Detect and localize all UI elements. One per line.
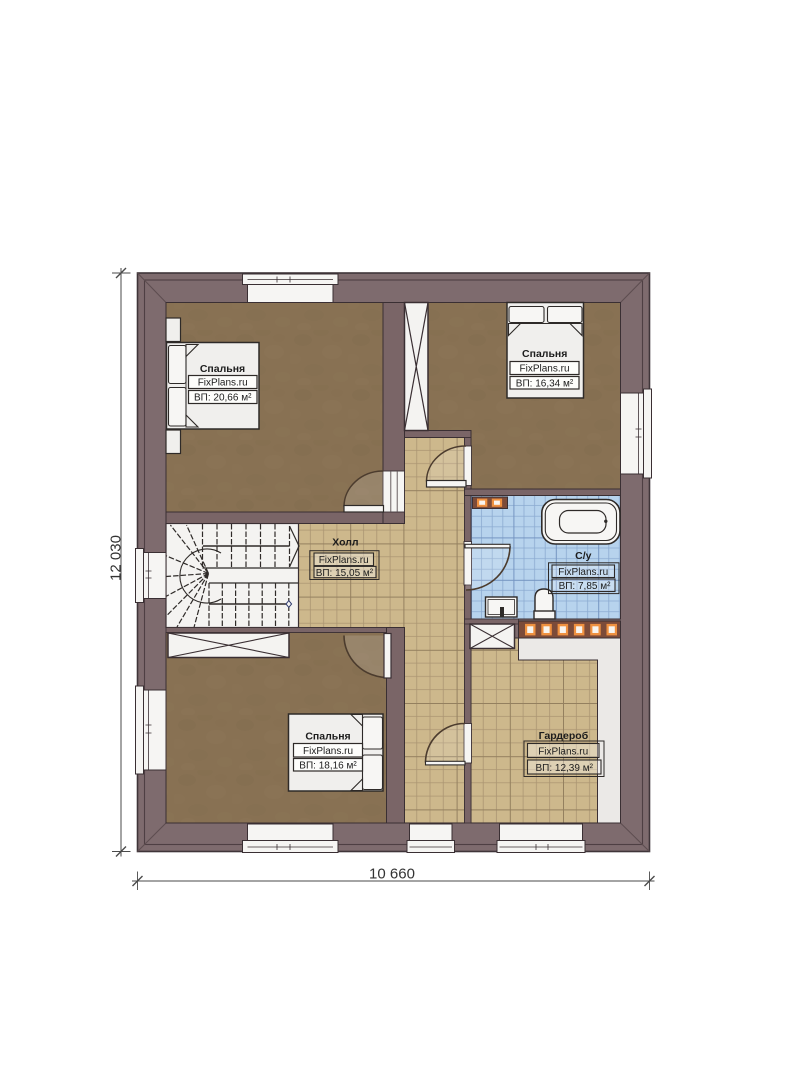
svg-text:ВП: 12,39 м²: ВП: 12,39 м² xyxy=(535,763,593,774)
svg-text:ВП: 20,66 м²: ВП: 20,66 м² xyxy=(194,393,252,404)
svg-text:10 660: 10 660 xyxy=(369,866,415,883)
svg-text:FixPlans.ru: FixPlans.ru xyxy=(319,555,369,566)
svg-text:FixPlans.ru: FixPlans.ru xyxy=(558,567,608,578)
svg-text:Холл: Холл xyxy=(332,537,358,549)
svg-text:FixPlans.ru: FixPlans.ru xyxy=(198,378,248,389)
svg-text:FixPlans.ru: FixPlans.ru xyxy=(303,746,353,757)
svg-text:ВП: 7,85 м²: ВП: 7,85 м² xyxy=(559,581,612,592)
svg-text:С/у: С/у xyxy=(575,550,592,562)
svg-text:ВП: 15,05 м²: ВП: 15,05 м² xyxy=(316,568,374,579)
svg-text:Спальня: Спальня xyxy=(522,348,567,360)
svg-text:FixPlans.ru: FixPlans.ru xyxy=(519,364,569,375)
svg-text:FixPlans.ru: FixPlans.ru xyxy=(538,746,588,757)
svg-text:Гардероб: Гардероб xyxy=(539,730,589,742)
svg-text:ВП: 18,16 м²: ВП: 18,16 м² xyxy=(299,760,357,771)
svg-text:Спальня: Спальня xyxy=(305,731,350,743)
svg-text:ВП: 16,34 м²: ВП: 16,34 м² xyxy=(516,378,574,389)
svg-text:Спальня: Спальня xyxy=(200,363,245,375)
svg-text:12 030: 12 030 xyxy=(108,535,125,581)
